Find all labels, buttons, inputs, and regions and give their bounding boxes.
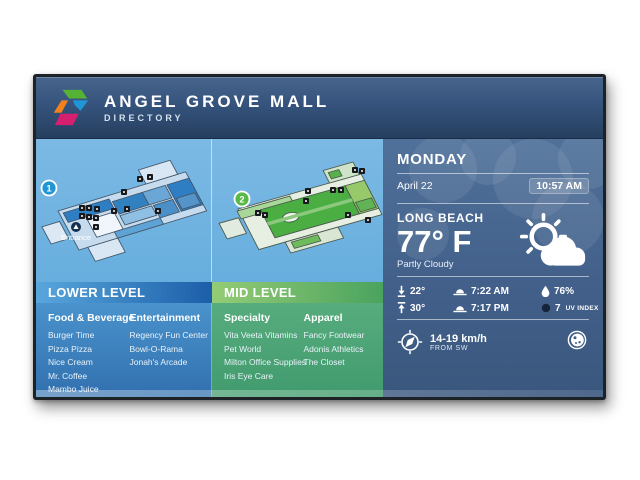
wind-row: 14-19 km/h FROM SW [397,329,589,355]
category-heading: Food & Beverage [48,312,124,324]
low-temp-value: 22° [410,286,425,297]
uv-index-stat: 7 UV INDEX [541,303,599,314]
mall-logo-icon [49,87,93,129]
divider [397,276,589,277]
high-temp-value: 30° [410,303,425,314]
sunrise-stat: 7:22 AM [453,286,541,297]
content-area: 1 Entrance LOWER LEVEL Food & Beverag [36,139,603,397]
high-temp-stat: 30° [397,302,453,314]
category-heading: Entertainment [130,312,206,324]
lower-level-map: 1 Entrance [36,139,212,282]
current-text: LONG BEACH 77° F Partly Cloudy [397,211,484,270]
sunset-icon [453,303,467,313]
page-title: ANGEL GROVE MALL [104,92,329,112]
uv-index-value: 7 [555,303,561,314]
mid-level-column: 2 MID LEVEL Specialty Vita Veeta Vitamin… [212,139,383,397]
list-item: Pet World [224,343,298,357]
wind-direction-label: FROM SW [430,345,487,352]
wind-speed-value: 14-19 km/h [430,333,487,345]
header-bar: ANGEL GROVE MALL DIRECTORY [36,77,603,139]
mid-level-map: 2 [212,139,383,282]
list-item: Jonah's Arcade [130,356,206,370]
apparel-column: Apparel Fancy Footwear Adonis Athletics … [304,312,378,397]
list-item: The Closet [304,356,378,370]
divider [397,203,589,204]
specialty-column: Specialty Vita Veeta Vitamins Pet World … [224,312,298,397]
sunset-value: 7:17 PM [471,303,509,314]
list-item: Milton Office Supplies [224,356,298,370]
sunset-stat: 7:17 PM [453,303,541,314]
divider [397,319,589,320]
temperature-value: 77° F [397,225,484,259]
list-item: Fancy Footwear [304,329,378,343]
level-2-badge: 2 [235,192,250,207]
page-subtitle: DIRECTORY [104,113,329,123]
wind-text: 14-19 km/h FROM SW [430,333,487,352]
lower-level-floorplan: 1 Entrance [36,139,211,282]
lower-level-listing: Food & Beverage Burger Time Pizza Pizza … [36,303,212,397]
category-heading: Apparel [304,312,378,324]
entertainment-column: Entertainment Regency Fun Center Bowl-O-… [130,312,206,397]
list-item: Adonis Athletics [304,343,378,357]
sunrise-icon [453,286,467,296]
humidity-stat: 76% [541,285,599,297]
lower-level-title: LOWER LEVEL [48,285,145,300]
date-label: April 22 [397,180,433,192]
list-item: Bowl-O-Rama [130,343,206,357]
uv-index-icon [541,303,551,313]
high-temp-icon [397,302,406,314]
humidity-value: 76% [554,286,574,297]
clock-time: 10:57 AM [529,178,589,194]
sunrise-value: 7:22 AM [471,286,509,297]
humidity-icon [541,285,550,297]
partly-cloudy-icon [507,213,589,271]
low-temp-icon [397,285,406,297]
mid-level-title: MID LEVEL [224,285,296,300]
weather-stats-grid: 22° 7:22 AM [397,285,589,314]
date-time-row: April 22 10:57 AM [397,174,589,198]
current-conditions: LONG BEACH 77° F Partly Cloudy [397,211,589,271]
city-label: LONG BEACH [397,211,484,225]
list-item: Regency Fun Center [130,329,206,343]
screen-gloss [36,390,603,397]
moon-wrap [567,330,587,355]
list-item: Nice Cream [48,356,124,370]
weekday-label: MONDAY [397,151,589,168]
mid-level-header: MID LEVEL [212,282,383,303]
entrance-label: Entrance [61,233,91,242]
low-temp-stat: 22° [397,285,453,297]
lower-level-column: 1 Entrance LOWER LEVEL Food & Beverag [36,139,212,397]
food-beverage-column: Food & Beverage Burger Time Pizza Pizza … [48,312,124,397]
list-item: Pizza Pizza [48,343,124,357]
map-badge-number: 1 [46,184,51,194]
category-heading: Specialty [224,312,298,324]
uv-index-label: UV INDEX [566,305,599,312]
list-item: Iris Eye Care [224,370,298,384]
display-bezel: ANGEL GROVE MALL DIRECTORY [33,74,606,400]
weather-panel: MONDAY April 22 10:57 AM LONG BEACH 77° … [383,139,603,397]
list-item: Burger Time [48,329,124,343]
level-1-badge: 1 [42,181,57,196]
header-titles: ANGEL GROVE MALL DIRECTORY [104,92,329,123]
moon-phase-icon [567,330,587,350]
signage-screen: ANGEL GROVE MALL DIRECTORY [36,77,603,397]
lower-level-header: LOWER LEVEL [36,282,212,303]
list-item: Vita Veeta Vitamins [224,329,298,343]
mid-level-floorplan: 2 [212,139,383,282]
map-badge-number: 2 [239,195,244,205]
compass-icon [397,329,423,355]
mid-level-listing: Specialty Vita Veeta Vitamins Pet World … [212,303,383,397]
list-item: Mr. Coffee [48,370,124,384]
condition-label: Partly Cloudy [397,259,484,270]
